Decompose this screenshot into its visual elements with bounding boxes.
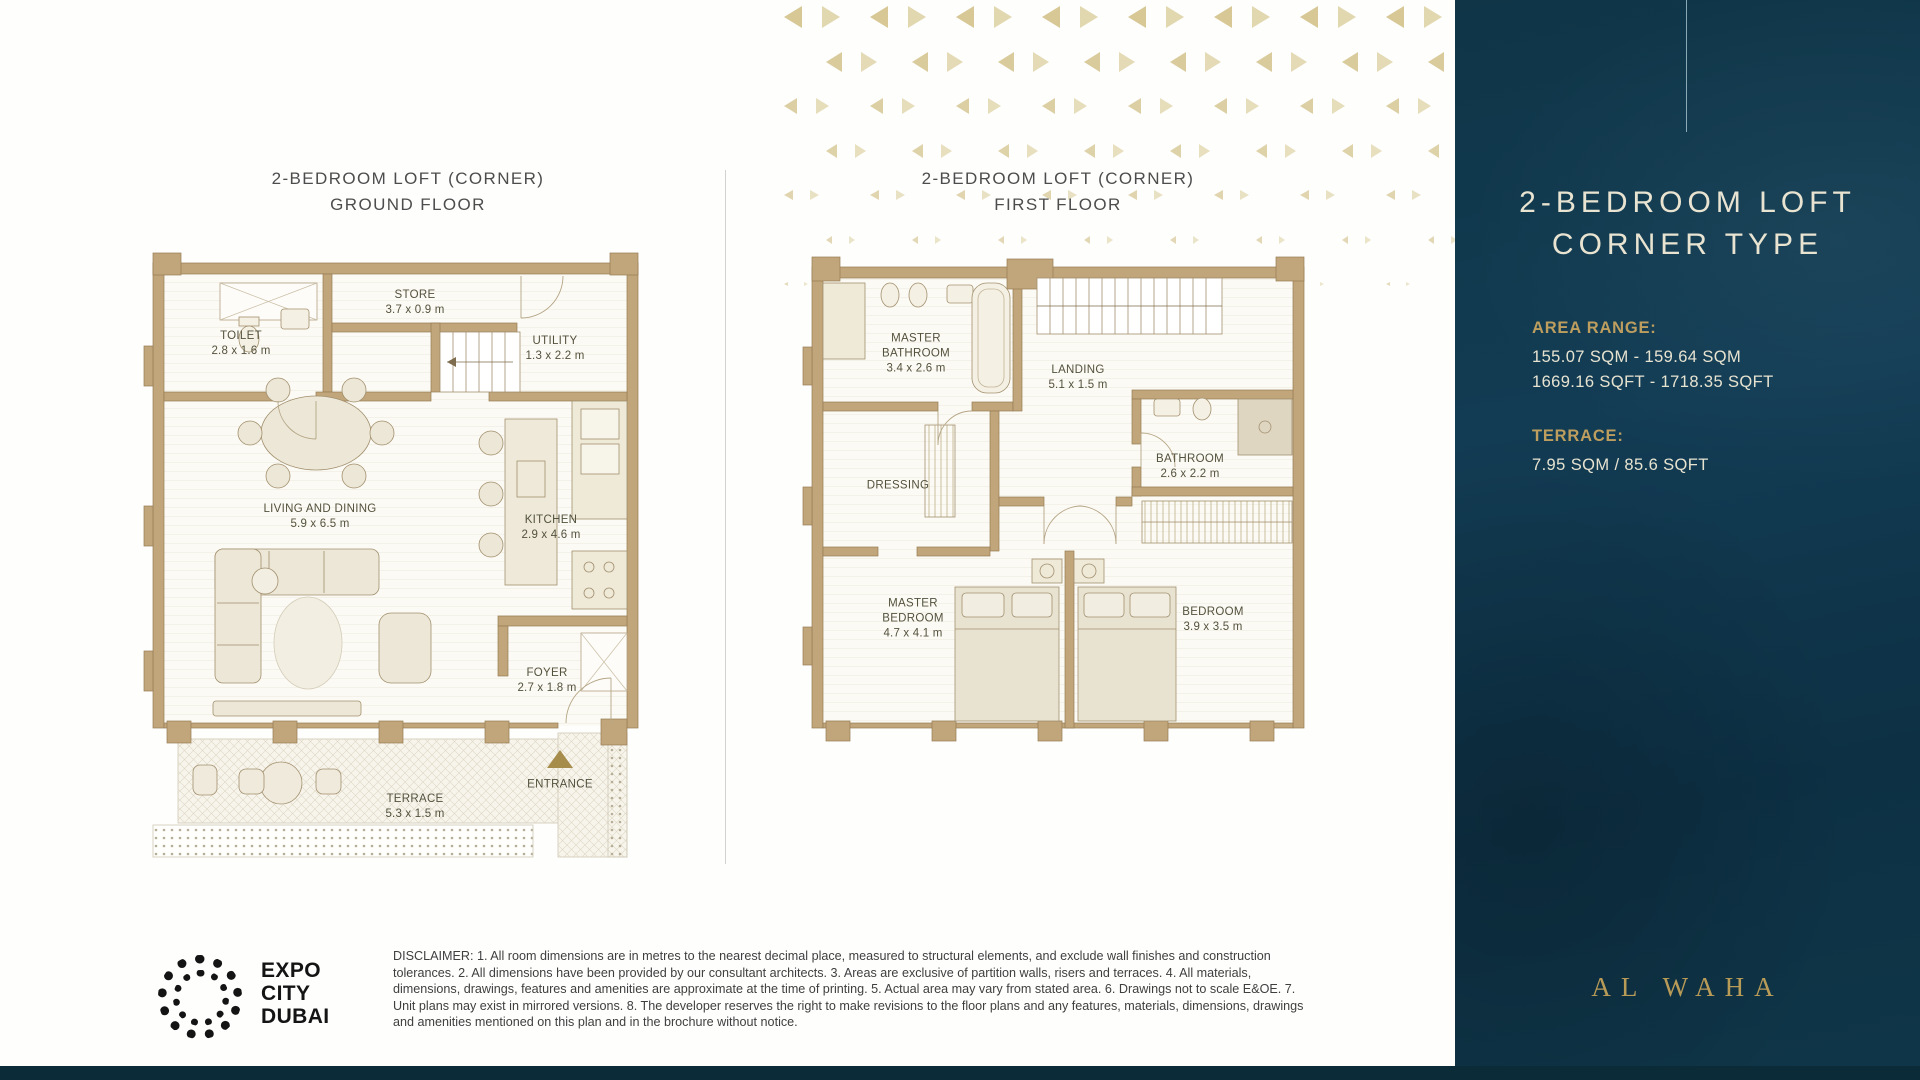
pattern-triangle-icon [1128, 6, 1146, 28]
pattern-triangle-icon [1214, 6, 1232, 28]
bottom-strip [0, 1066, 1920, 1080]
pattern-triangle-icon [1042, 6, 1060, 28]
pattern-triangle-icon [1166, 6, 1184, 28]
area-range-sqm: 155.07 SQM - 159.64 SQM [1532, 345, 1774, 370]
room-label-bedroom: BEDROOM 3.9 x 3.5 m [1163, 605, 1263, 635]
pattern-triangle-icon [1386, 98, 1399, 114]
pattern-triangle-icon [784, 282, 788, 286]
pattern-triangle-icon [912, 52, 928, 72]
pattern-triangle-icon [1170, 52, 1186, 72]
pattern-triangle-icon [826, 144, 837, 158]
terrace-value: 7.95 SQM / 85.6 SQFT [1532, 453, 1709, 478]
room-label-landing: LANDING 5.1 x 1.5 m [1023, 363, 1133, 393]
pattern-triangle-icon [804, 282, 808, 286]
pattern-triangle-icon [1424, 6, 1442, 28]
room-label-toilet: TOILET 2.8 x 1.6 m [196, 329, 286, 359]
sidebar-accent-line [1686, 0, 1687, 132]
ground-floor-title: 2-BEDROOM LOFT (CORNER) GROUND FLOOR [153, 166, 663, 219]
pattern-triangle-icon [1205, 52, 1221, 72]
pattern-triangle-icon [1128, 98, 1141, 114]
pattern-triangle-icon [784, 98, 797, 114]
pattern-triangle-icon [956, 98, 969, 114]
room-label-store: STORE 3.7 x 0.9 m [350, 288, 480, 318]
pattern-triangle-icon [1279, 236, 1285, 244]
pattern-triangle-icon [902, 98, 915, 114]
room-label-terrace: TERRACE 5.3 x 1.5 m [350, 792, 480, 822]
plans-divider [725, 170, 726, 864]
area-range-sqft: 1669.16 SQFT - 1718.35 SQFT [1532, 370, 1774, 395]
pattern-triangle-icon [1027, 144, 1038, 158]
terrace-label: TERRACE: [1532, 424, 1709, 449]
pattern-triangle-icon [947, 52, 963, 72]
pattern-triangle-icon [1084, 52, 1100, 72]
pattern-triangle-icon [994, 6, 1012, 28]
pattern-triangle-icon [998, 144, 1009, 158]
pattern-triangle-icon [1377, 52, 1393, 72]
pattern-triangle-icon [1285, 144, 1296, 158]
pattern-triangle-icon [849, 236, 855, 244]
pattern-triangle-icon [1386, 6, 1404, 28]
pattern-triangle-icon [998, 52, 1014, 72]
pattern-triangle-icon [1332, 98, 1345, 114]
ground-floor-plan: TOILET 2.8 x 1.6 m STORE 3.7 x 0.9 m UTI… [153, 251, 638, 857]
pattern-triangle-icon [1342, 236, 1348, 244]
pattern-triangle-icon [1428, 144, 1439, 158]
pattern-triangle-icon [1338, 6, 1356, 28]
pattern-triangle-icon [941, 144, 952, 158]
pattern-triangle-icon [826, 52, 842, 72]
pattern-triangle-icon [784, 6, 802, 28]
first-floor-title-line1: 2-BEDROOM LOFT (CORNER) [812, 166, 1304, 192]
pattern-triangle-icon [1418, 98, 1431, 114]
entrance-label: ENTRANCE [505, 778, 615, 793]
pattern-triangle-icon [1256, 52, 1272, 72]
pattern-triangle-icon [1326, 190, 1335, 200]
info-sidebar: 2-BEDROOM LOFT CORNER TYPE AREA RANGE: 1… [1455, 0, 1920, 1080]
pattern-triangle-icon [988, 98, 1001, 114]
pattern-triangle-icon [861, 52, 877, 72]
pattern-triangle-icon [1074, 98, 1087, 114]
first-floor-title: 2-BEDROOM LOFT (CORNER) FIRST FLOOR [812, 166, 1304, 219]
pattern-triangle-icon [1080, 6, 1098, 28]
pattern-triangle-icon [1256, 236, 1262, 244]
pattern-triangle-icon [1371, 144, 1382, 158]
pattern-triangle-icon [1300, 6, 1318, 28]
pattern-triangle-icon [1386, 190, 1395, 200]
pattern-triangle-icon [1160, 98, 1173, 114]
pattern-triangle-icon [912, 236, 918, 244]
pattern-triangle-icon [1084, 236, 1090, 244]
pattern-triangle-icon [816, 98, 829, 114]
room-label-master-bathroom: MASTER BATHROOM 3.4 x 2.6 m [870, 332, 962, 377]
pattern-triangle-icon [998, 236, 1004, 244]
pattern-triangle-icon [1113, 144, 1124, 158]
ground-floor-title-line2: GROUND FLOOR [153, 192, 663, 218]
expo-logo-inner-ring-icon [173, 970, 229, 1026]
pattern-triangle-icon [1412, 190, 1421, 200]
pattern-triangle-icon [1170, 236, 1176, 244]
pattern-triangle-icon [1386, 282, 1390, 286]
pattern-triangle-icon [822, 6, 840, 28]
pattern-triangle-icon [1300, 98, 1313, 114]
pattern-triangle-icon [1021, 236, 1027, 244]
room-label-utility: UTILITY 1.3 x 2.2 m [510, 334, 600, 364]
pattern-triangle-icon [1320, 282, 1324, 286]
pattern-triangle-icon [1170, 144, 1181, 158]
pattern-triangle-icon [1342, 52, 1358, 72]
pattern-triangle-icon [826, 236, 832, 244]
pattern-triangle-icon [1084, 144, 1095, 158]
pattern-triangle-icon [1107, 236, 1113, 244]
pattern-triangle-icon [855, 144, 866, 158]
disclaimer-text: DISCLAIMER: 1. All room dimensions are i… [393, 948, 1311, 1031]
pattern-triangle-icon [1199, 144, 1210, 158]
expo-city-dubai-logo: EXPO CITY DUBAI [158, 953, 358, 1045]
pattern-triangle-icon [908, 6, 926, 28]
pattern-triangle-icon [1342, 144, 1353, 158]
pattern-triangle-icon [1246, 98, 1259, 114]
al-waha-logo: AL WAHA [1455, 972, 1920, 1003]
room-label-bathroom: BATHROOM 2.6 x 2.2 m [1135, 452, 1245, 482]
pattern-triangle-icon [1428, 236, 1434, 244]
unit-type-title: 2-BEDROOM LOFT CORNER TYPE [1455, 182, 1920, 266]
pattern-triangle-icon [870, 6, 888, 28]
first-floor-plan: MASTER BATHROOM 3.4 x 2.6 m LANDING 5.1 … [812, 257, 1304, 749]
pattern-triangle-icon [956, 6, 974, 28]
pattern-triangle-icon [1252, 6, 1270, 28]
room-label-dressing: DRESSING [848, 479, 948, 494]
pattern-triangle-icon [1033, 52, 1049, 72]
terrace-area-block: TERRACE: 7.95 SQM / 85.6 SQFT [1532, 424, 1709, 478]
room-label-master-bedroom: MASTER BEDROOM 4.7 x 4.1 m [867, 597, 959, 642]
ground-floor-title-line1: 2-BEDROOM LOFT (CORNER) [153, 166, 663, 192]
area-range-block: AREA RANGE: 155.07 SQM - 159.64 SQM 1669… [1532, 316, 1774, 394]
area-range-label: AREA RANGE: [1532, 316, 1774, 341]
pattern-triangle-icon [1042, 98, 1055, 114]
pattern-triangle-icon [1428, 52, 1444, 72]
pattern-triangle-icon [1256, 144, 1267, 158]
room-label-foyer: FOYER 2.7 x 1.8 m [502, 666, 592, 696]
pattern-triangle-icon [1365, 236, 1371, 244]
pattern-triangle-icon [1193, 236, 1199, 244]
pattern-triangle-icon [912, 144, 923, 158]
pattern-triangle-icon [935, 236, 941, 244]
pattern-triangle-icon [784, 190, 793, 200]
expo-logo-text: EXPO CITY DUBAI [261, 959, 330, 1028]
pattern-triangle-icon [1291, 52, 1307, 72]
pattern-triangle-icon [1406, 282, 1410, 286]
room-label-kitchen: KITCHEN 2.9 x 4.6 m [506, 513, 596, 543]
ff-stairs [1037, 278, 1222, 334]
pattern-triangle-icon [870, 98, 883, 114]
first-floor-title-line2: FIRST FLOOR [812, 192, 1304, 218]
pattern-triangle-icon [1214, 98, 1227, 114]
gf-stairs [440, 332, 520, 392]
room-label-living-dining: LIVING AND DINING 5.9 x 6.5 m [240, 502, 400, 532]
pattern-triangle-icon [1119, 52, 1135, 72]
